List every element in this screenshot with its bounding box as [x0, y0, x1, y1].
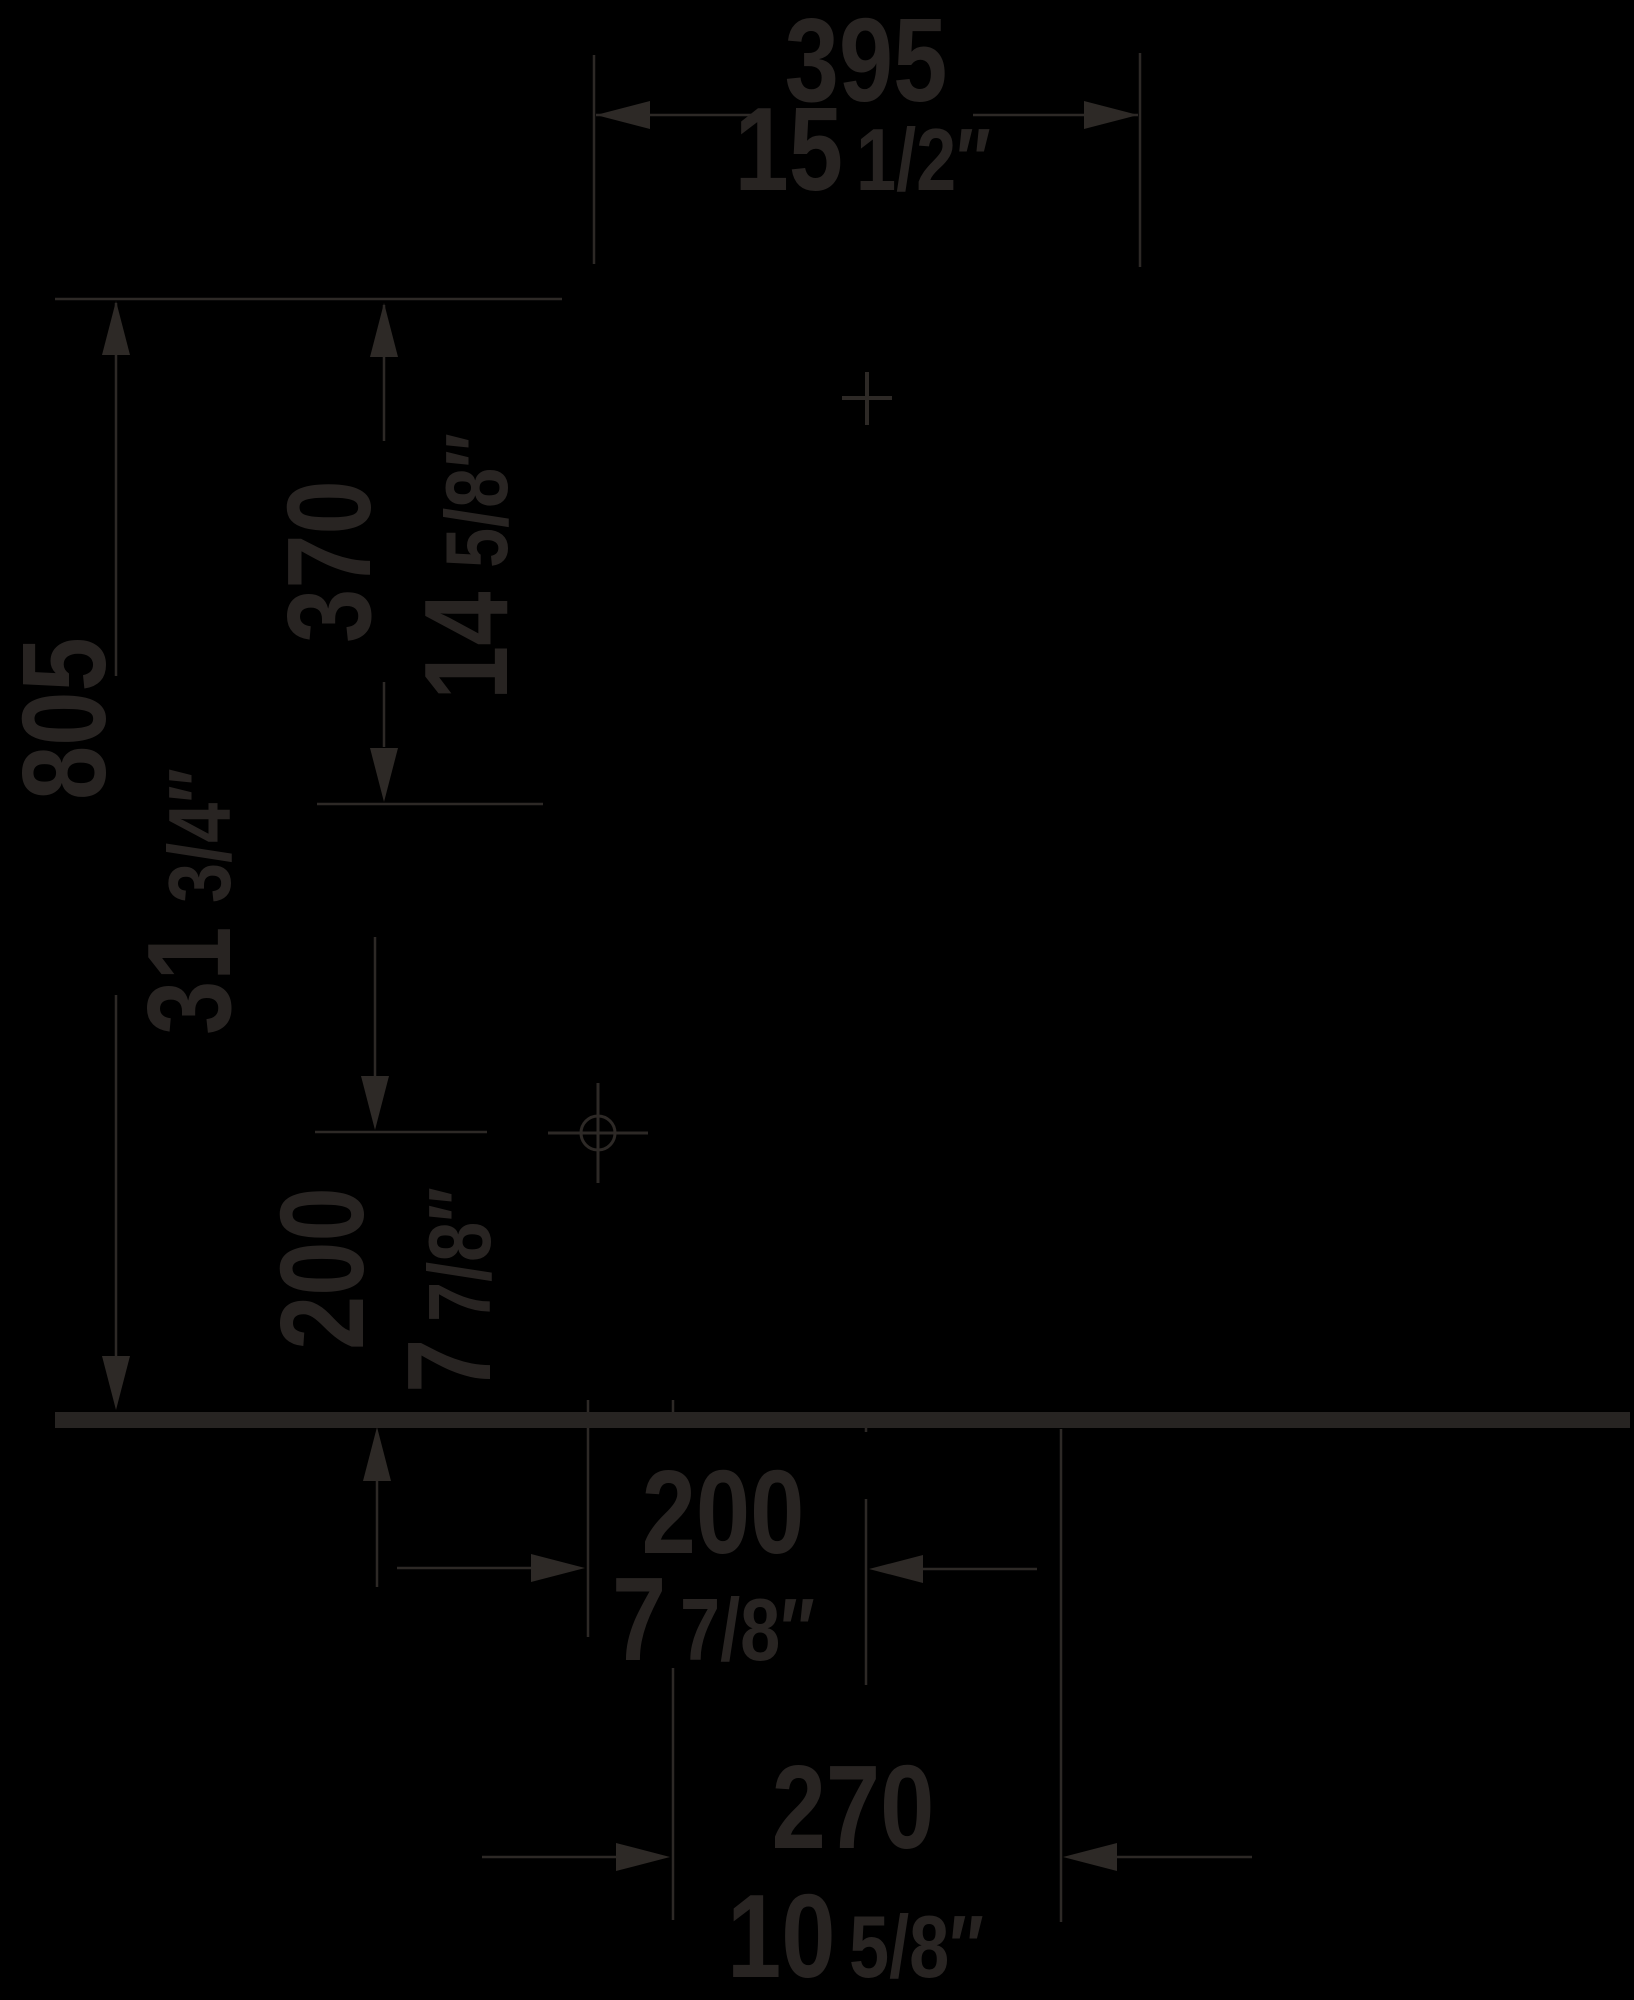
- label-outlet-height-inch-frac: 7/8″: [411, 1187, 509, 1322]
- label-outlet-height-mm: 200: [256, 1187, 389, 1350]
- label-height-total-inch-frac: 3/4″: [151, 768, 249, 903]
- label-height-total-mm: 805: [0, 637, 131, 800]
- label-supply-offset-inch-int: 7: [612, 1553, 666, 1686]
- arrowhead-270-left: [616, 1843, 670, 1871]
- arrowhead-200v-up: [363, 1427, 391, 1481]
- label-outlet-offset-inch-int: 10: [727, 1870, 836, 2000]
- arrowhead-805-top: [102, 301, 130, 355]
- label-outlet-offset-inch-frac: 5/8″: [849, 1898, 984, 1996]
- arrowhead-200h-left: [531, 1554, 585, 1582]
- label-outlet-offset-mm: 270: [772, 1741, 935, 1874]
- wall-fixing-cross-icon: [842, 372, 892, 425]
- arrowhead-270-right: [1063, 1843, 1117, 1871]
- dimension-drawing: 395 15 1/2″ 805 31 3/4″ 370 14 5/8″ 200 …: [0, 0, 1634, 2000]
- arrowhead-width-left: [596, 101, 650, 129]
- label-height-upper-mm: 370: [263, 480, 396, 643]
- arrowhead-200h-right: [869, 1555, 923, 1583]
- arrowhead-width-right: [1084, 101, 1138, 129]
- arrowhead-200v-down: [361, 1076, 389, 1130]
- label-height-upper-inch-int: 14: [400, 591, 533, 700]
- label-height-total-inch-int: 31: [123, 926, 256, 1035]
- arrowhead-370-bottom: [370, 748, 398, 802]
- label-supply-offset-inch-frac: 7/8″: [680, 1581, 815, 1679]
- label-height-upper-inch-frac: 5/8″: [428, 433, 526, 568]
- floor-line: [55, 1412, 1630, 1428]
- drawing-canvas: 395 15 1/2″ 805 31 3/4″ 370 14 5/8″ 200 …: [0, 0, 1634, 2000]
- arrowhead-370-top: [370, 303, 398, 357]
- label-width-inch-frac: 1/2″: [856, 111, 991, 209]
- arrowhead-805-bottom: [102, 1356, 130, 1410]
- label-outlet-height-inch-int: 7: [383, 1339, 516, 1393]
- label-width-inch-int: 15: [734, 83, 843, 216]
